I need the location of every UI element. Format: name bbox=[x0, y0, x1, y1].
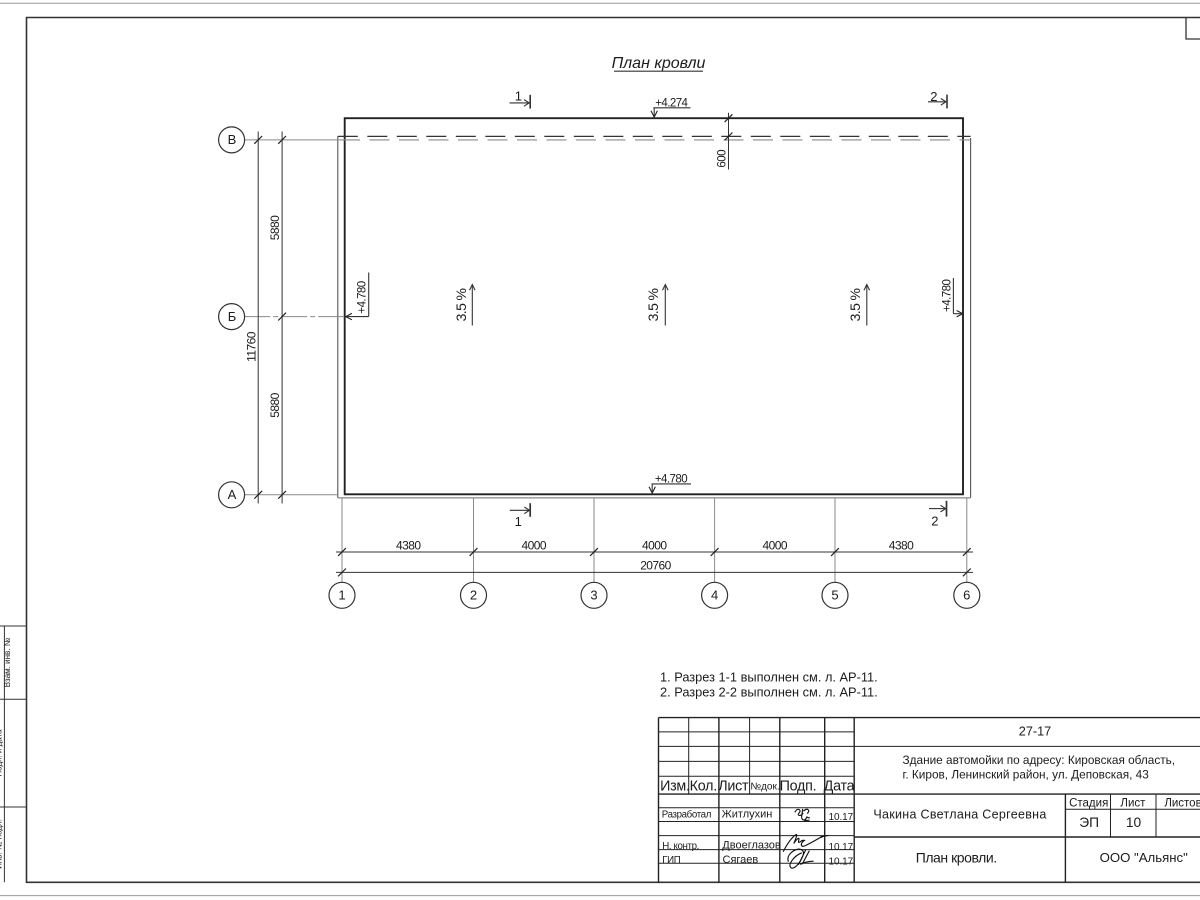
svg-text:Разработал: Разработал bbox=[662, 809, 711, 820]
svg-text:Сягаев: Сягаев bbox=[723, 854, 759, 866]
svg-text:20760: 20760 bbox=[640, 558, 671, 572]
svg-text:10: 10 bbox=[1126, 815, 1142, 830]
svg-text:Кол.: Кол. bbox=[690, 779, 717, 795]
svg-text:План кровли.: План кровли. bbox=[916, 850, 997, 866]
svg-text:1: 1 bbox=[515, 89, 522, 104]
svg-text:План кровли: План кровли bbox=[612, 55, 706, 72]
svg-text:Двоеглазов: Двоеглазов bbox=[722, 840, 781, 852]
svg-text:В: В bbox=[228, 132, 237, 147]
svg-text:Стадия: Стадия bbox=[1069, 797, 1108, 809]
svg-text:Лист: Лист bbox=[1120, 797, 1146, 809]
svg-text:Взам. инв. №: Взам. инв. № bbox=[3, 637, 12, 687]
svg-text:Н. контр.: Н. контр. bbox=[662, 841, 699, 852]
svg-text:2: 2 bbox=[931, 514, 938, 529]
svg-text:Изм.: Изм. bbox=[660, 779, 690, 795]
svg-text:Подп. и дата: Подп. и дата bbox=[0, 729, 4, 777]
svg-text:ООО "Альянс": ООО "Альянс" bbox=[1100, 850, 1188, 865]
svg-text:27-17: 27-17 bbox=[1019, 724, 1051, 738]
svg-text:4380: 4380 bbox=[889, 539, 914, 553]
svg-text:+4.780: +4.780 bbox=[356, 281, 368, 313]
svg-text:г. Киров, Ленинский район, ул.: г. Киров, Ленинский район, ул. Деповская… bbox=[903, 768, 1150, 782]
svg-text:5880: 5880 bbox=[268, 215, 282, 240]
svg-text:Листов: Листов bbox=[1164, 797, 1200, 809]
svg-text:Здание автомойки по адресу: Ки: Здание автомойки по адресу: Кировская об… bbox=[903, 753, 1176, 767]
svg-text:3.5 %: 3.5 % bbox=[847, 288, 863, 321]
svg-text:Лист: Лист bbox=[718, 779, 749, 795]
svg-text:1. Разрез 1-1 выполнен см. л.: 1. Разрез 1-1 выполнен см. л. АР-11. bbox=[660, 670, 878, 685]
svg-text:10.17: 10.17 bbox=[829, 842, 854, 853]
svg-text:600: 600 bbox=[716, 150, 728, 168]
svg-text:6: 6 bbox=[963, 588, 970, 603]
svg-text:11760: 11760 bbox=[245, 331, 259, 362]
svg-text:4000: 4000 bbox=[642, 539, 667, 553]
svg-text:3: 3 bbox=[590, 588, 597, 603]
svg-text:Б: Б bbox=[228, 309, 237, 324]
svg-text:5880: 5880 bbox=[268, 392, 282, 417]
svg-text:10.17: 10.17 bbox=[829, 812, 854, 823]
svg-text:3.5 %: 3.5 % bbox=[453, 288, 469, 321]
svg-text:№док.: №док. bbox=[750, 781, 779, 792]
svg-text:4000: 4000 bbox=[522, 539, 547, 553]
svg-text:1: 1 bbox=[515, 514, 522, 529]
svg-text:4380: 4380 bbox=[396, 539, 421, 553]
svg-text:+4.780: +4.780 bbox=[941, 280, 953, 312]
svg-text:4: 4 bbox=[711, 588, 718, 603]
svg-text:10.17: 10.17 bbox=[829, 857, 854, 868]
svg-text:Подп.: Подп. bbox=[780, 779, 817, 795]
svg-text:Дата: Дата bbox=[824, 779, 855, 795]
svg-text:2: 2 bbox=[930, 89, 937, 104]
svg-text:2. Разрез 2-2 выполнен см. л.: 2. Разрез 2-2 выполнен см. л. АР-11. bbox=[660, 684, 878, 699]
svg-text:Чакина Светлана Сергеевна: Чакина Светлана Сергеевна bbox=[873, 807, 1046, 821]
svg-text:ГИП: ГИП bbox=[662, 855, 681, 866]
svg-text:Инв. № подл.: Инв. № подл. bbox=[0, 819, 4, 869]
svg-text:5: 5 bbox=[831, 588, 838, 603]
svg-text:А: А bbox=[228, 487, 237, 502]
svg-text:3.5 %: 3.5 % bbox=[645, 288, 661, 321]
svg-text:1: 1 bbox=[338, 588, 345, 603]
svg-text:ЭП: ЭП bbox=[1079, 815, 1099, 830]
svg-text:4000: 4000 bbox=[763, 539, 788, 553]
svg-text:Житлухин: Житлухин bbox=[722, 808, 773, 820]
svg-text:2: 2 bbox=[470, 588, 477, 603]
